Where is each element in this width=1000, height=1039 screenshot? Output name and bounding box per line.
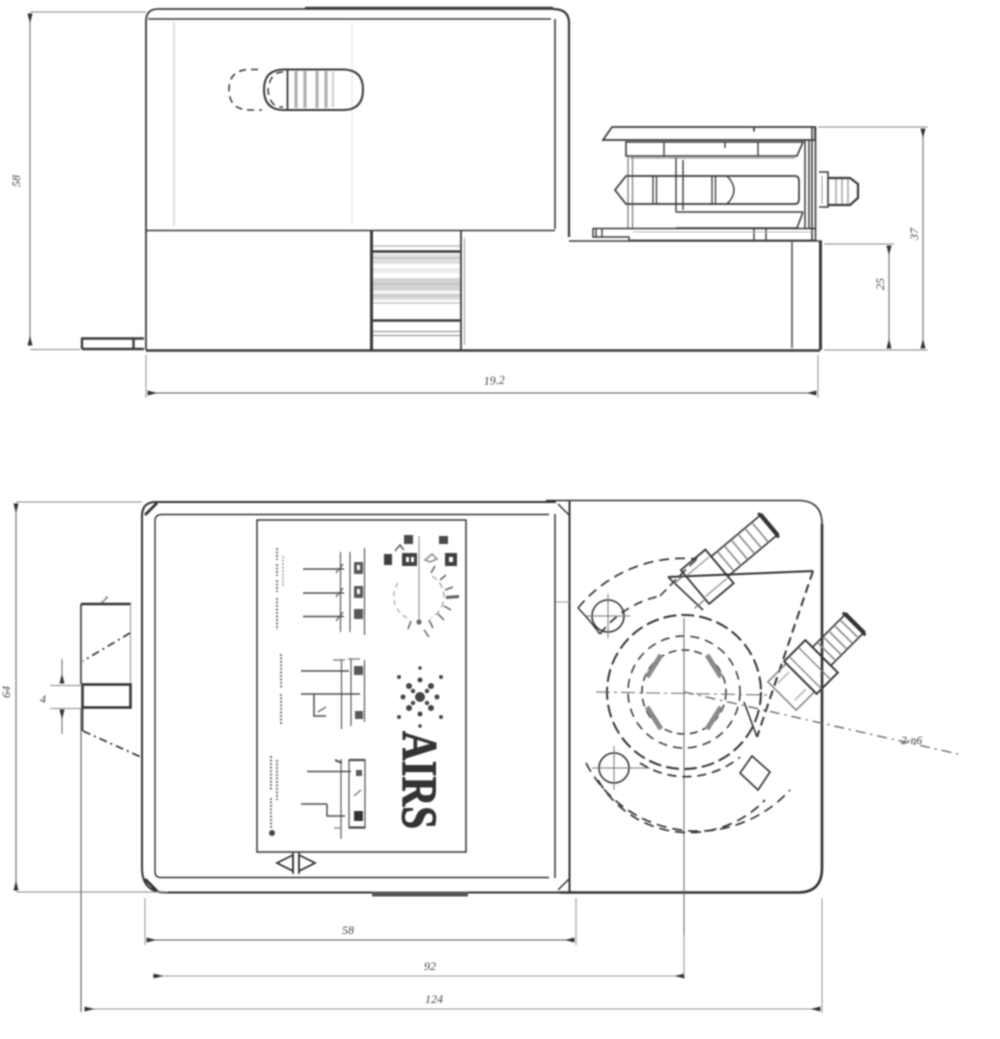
svg-text:124: 124: [425, 992, 443, 1006]
svg-text:58: 58: [342, 923, 354, 937]
svg-text:64: 64: [0, 686, 13, 698]
svg-text:AIRS: AIRS: [392, 731, 448, 829]
svg-text:92: 92: [424, 959, 436, 973]
svg-text:19.2: 19.2: [483, 373, 505, 388]
svg-text:25: 25: [873, 278, 887, 290]
svg-text:2-n6: 2-n6: [901, 735, 922, 747]
svg-text:58: 58: [9, 175, 23, 187]
svg-text:37: 37: [907, 227, 921, 241]
svg-text:4: 4: [40, 692, 46, 706]
